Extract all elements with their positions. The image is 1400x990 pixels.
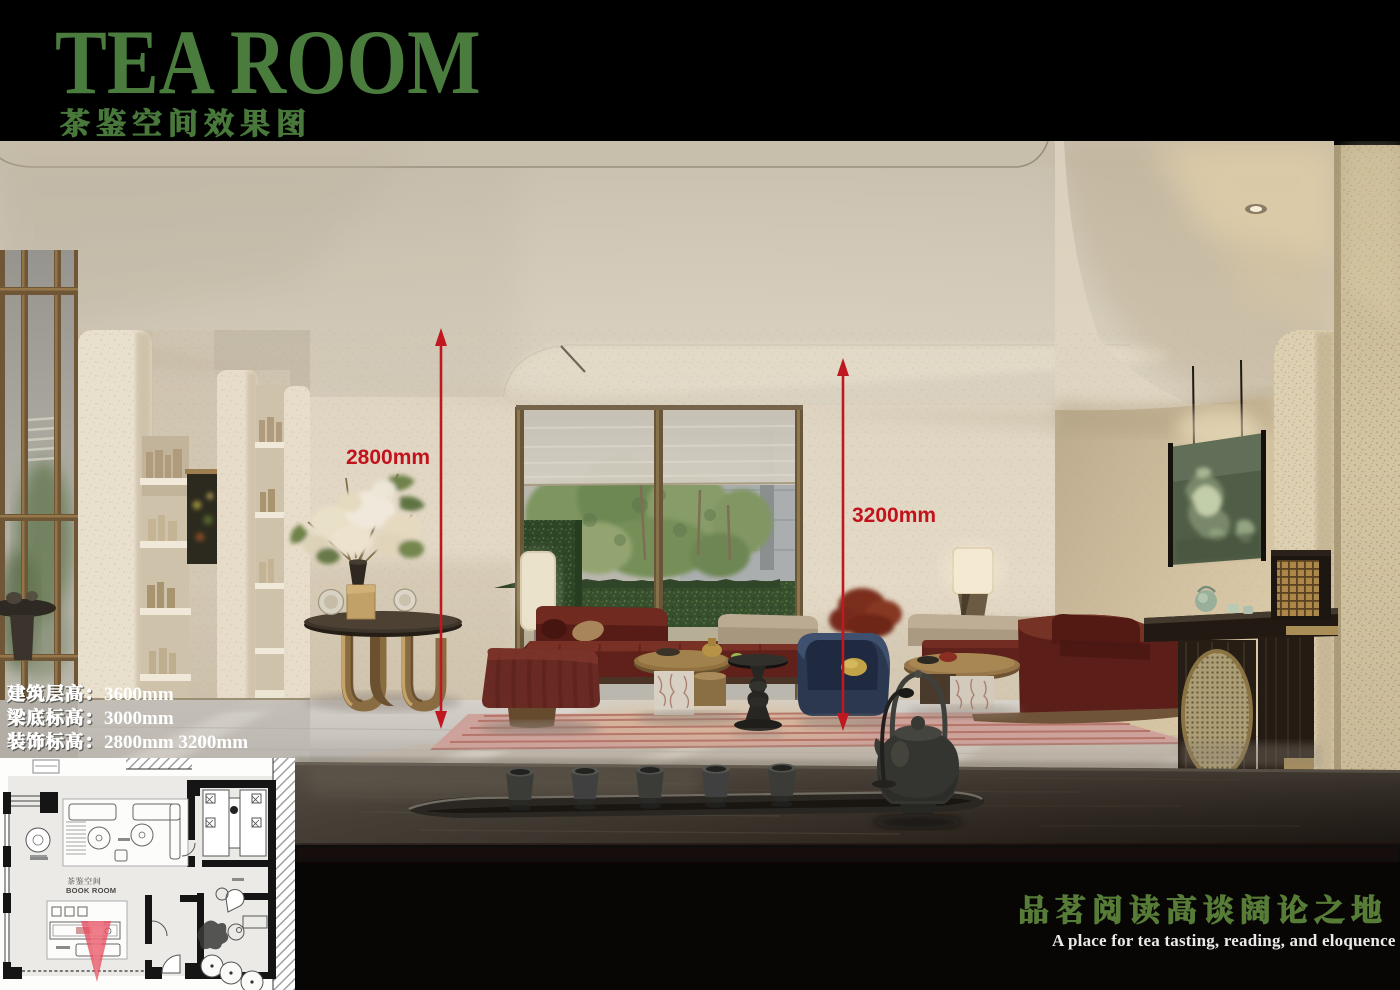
svg-text:3600mm: 3600mm (104, 684, 174, 705)
svg-text:2800mm: 2800mm (346, 446, 430, 469)
svg-text:3200mm: 3200mm (852, 504, 936, 527)
svg-text:2800mm 3200mm: 2800mm 3200mm (104, 732, 248, 753)
svg-text:BOOK ROOM: BOOK ROOM (66, 886, 116, 895)
svg-text:3000mm: 3000mm (104, 708, 174, 729)
